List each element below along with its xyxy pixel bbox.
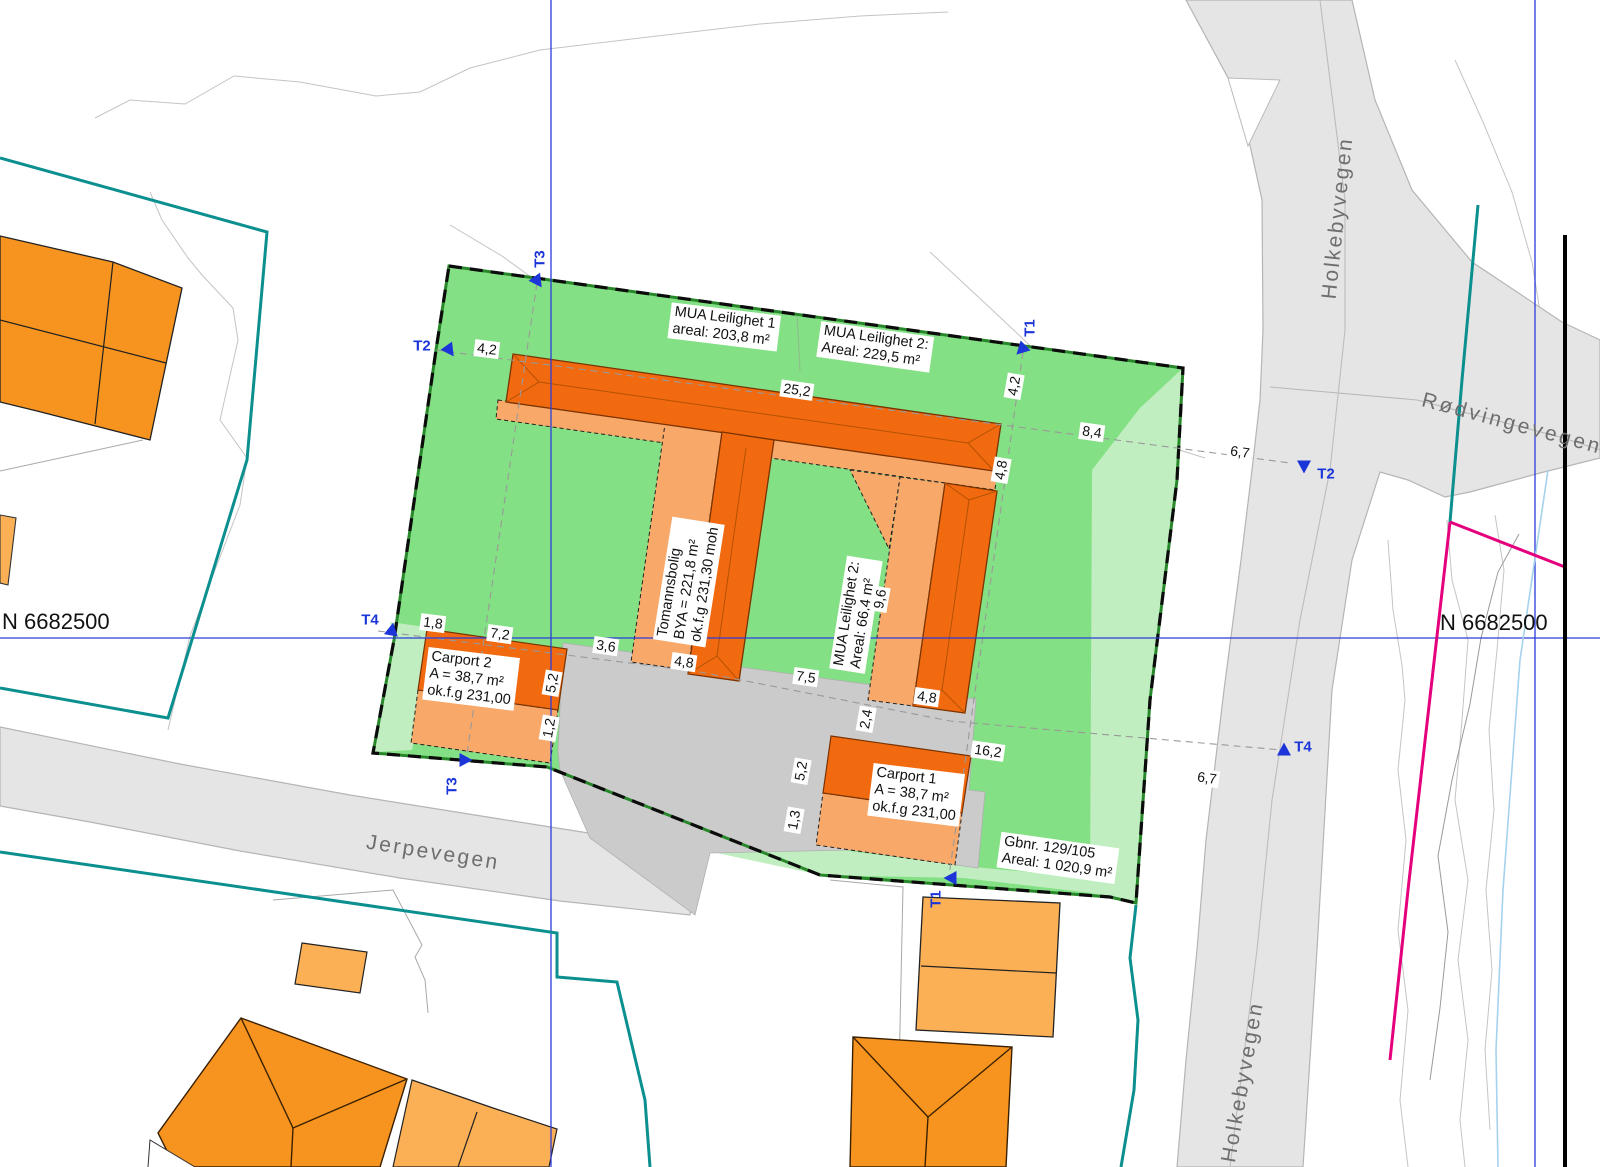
neighbor-building-se	[850, 1037, 1012, 1167]
label-carport-2: Carport 2 A = 38,7 m² ok.f.g 231,00	[422, 647, 520, 711]
neighbor-building-s-light	[393, 1080, 557, 1167]
marker-t1-north: T1	[1022, 319, 1039, 337]
dim-label: 3,6	[592, 636, 620, 656]
survey-triangle-icon	[1277, 743, 1291, 756]
contour-line	[1485, 515, 1504, 1130]
site-plan-map: N 6682500 N 6682500 Jerpevegen Holkebyve…	[0, 0, 1600, 1167]
marker-t1-south: T1	[928, 890, 945, 908]
property-line	[1121, 905, 1138, 1167]
dim-label: 7,5	[792, 667, 820, 687]
marker-t3-north: T3	[532, 250, 549, 268]
contour-line	[150, 192, 247, 730]
dim-label: 4,8	[670, 652, 698, 672]
survey-triangle-icon	[384, 621, 400, 636]
contour-line	[95, 12, 948, 118]
dim-label: 1,8	[419, 613, 446, 633]
marker-t4-east: T4	[1294, 739, 1312, 756]
survey-triangle-icon	[944, 871, 957, 885]
survey-triangle-icon	[460, 753, 473, 767]
dim-label: 6,7	[1193, 768, 1221, 788]
boundary-lines-magenta	[1390, 522, 1565, 1060]
dim-label: 8,4	[1078, 422, 1106, 442]
map-graphics	[0, 0, 1600, 1167]
neighbor-shed-sw	[295, 943, 367, 993]
dim-label: 7,2	[486, 624, 514, 644]
neighbor-building-nw	[0, 236, 182, 440]
survey-triangle-icon	[1297, 461, 1311, 474]
dim-label: 4,2	[473, 339, 500, 359]
magenta-line	[1390, 522, 1450, 1060]
marker-t2-east: T2	[1317, 466, 1335, 483]
neighbor-building-sw	[158, 1018, 407, 1167]
marker-t4-west: T4	[361, 612, 379, 629]
magenta-line	[1450, 522, 1565, 567]
contour-line	[1388, 540, 1408, 1167]
dim-label: 4,8	[913, 687, 941, 707]
coordinate-label-right: N 6682500	[1440, 610, 1548, 636]
marker-t2-west: T2	[413, 338, 431, 355]
road-holkebyvegen	[1177, 0, 1600, 1167]
neighbor-building-west-small	[0, 515, 16, 585]
coordinate-label-left: N 6682500	[2, 609, 110, 635]
parcel-line	[0, 440, 143, 471]
marker-t3-south: T3	[444, 777, 461, 795]
dim-label: 6,7	[1226, 442, 1254, 462]
label-carport-1: Carport 1 A = 38,7 m² ok.f.g 231,00	[867, 763, 965, 827]
